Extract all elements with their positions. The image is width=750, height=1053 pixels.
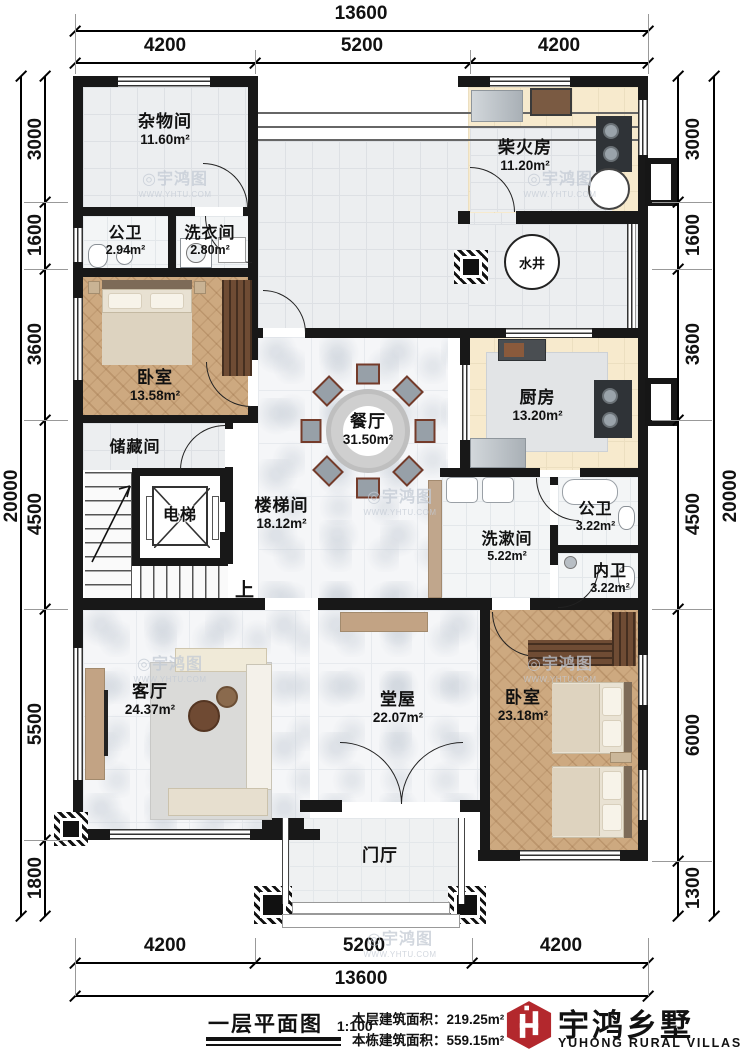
title-underline-thick: [206, 1037, 341, 1041]
ext-line: [24, 202, 68, 203]
ext-line: [648, 938, 649, 996]
courtyard-sill-line: [258, 112, 638, 114]
dim-top-seg1: 4200: [144, 35, 186, 57]
wall-hall-south-left: [300, 800, 342, 812]
water-well: 水井: [504, 234, 560, 290]
ext-line: [470, 50, 471, 74]
dim-top-seg3: 4200: [538, 35, 580, 57]
sofa: [246, 664, 272, 790]
bed-headboard: [102, 280, 192, 289]
ext-line: [75, 938, 76, 996]
wall-kitchen-south-right: [580, 468, 648, 477]
column: [454, 250, 488, 284]
wall-firewood-south-stub: [458, 211, 470, 224]
building-area-line: 本栋建筑面积：559.15m²: [352, 1029, 504, 1049]
dim-line: [75, 995, 648, 997]
wall-firewood-south: [516, 211, 648, 224]
chaise: [168, 788, 268, 816]
stove-burner: [603, 146, 619, 162]
pillow: [602, 687, 622, 716]
dim-line: [75, 962, 648, 964]
dim-line: [713, 76, 715, 916]
window: [118, 76, 210, 87]
dining-chair: [356, 478, 380, 499]
dim-left-seg2: 1600: [25, 214, 47, 256]
dim-bottom-seg1: 4200: [144, 935, 186, 957]
kitchen-pass-divider: [462, 365, 470, 440]
room-label-bath3: 内卫3.22m²: [565, 562, 655, 596]
courtyard-sill-line: [258, 126, 638, 128]
wall-kitchen-north: [592, 328, 648, 338]
dim-bottom-total: 13600: [335, 968, 388, 990]
floor-area-line: 本层建筑面积：219.25m²: [352, 1008, 504, 1028]
wall-hall-south-right: [460, 800, 488, 812]
room-label-living: 客厅24.37m²: [95, 682, 205, 719]
ext-line: [75, 14, 76, 74]
wall-storage-east: [248, 76, 258, 216]
dim-right-seg1: 3000: [683, 118, 705, 160]
window: [506, 328, 592, 338]
pillow: [108, 293, 142, 309]
dim-right-total: 20000: [720, 470, 742, 523]
wall-storage-south-stub: [243, 207, 258, 216]
room-label-bath2: 公卫3.22m²: [548, 500, 643, 534]
ext-line: [24, 609, 68, 610]
room-label-hall: 堂屋22.07m²: [328, 690, 468, 727]
bed-headboard: [624, 682, 632, 754]
porch-step: [292, 902, 450, 914]
dim-bottom-seg3: 4200: [540, 935, 582, 957]
dim-right-seg3: 3600: [683, 323, 705, 365]
pillow: [602, 720, 622, 747]
room-label-firewood: 柴火房11.20m²: [455, 138, 595, 175]
bed-duvet: [552, 768, 600, 836]
firewood-stove-feeder: [530, 88, 572, 116]
dim-top-total: 13600: [335, 3, 388, 25]
vanity-sink: [482, 477, 514, 503]
wall-storage-south: [73, 207, 195, 216]
wall-mid-south-right: [530, 598, 648, 610]
stairs-up-label: 上: [230, 580, 260, 603]
room-label-elevator: 电梯: [140, 506, 220, 525]
ext-line: [472, 938, 473, 962]
wall-stair-block-east-stub: [225, 423, 233, 429]
dim-left-seg6: 1800: [25, 857, 47, 899]
ext-line: [648, 14, 649, 74]
flue-box: [645, 158, 677, 206]
ext-line: [24, 269, 68, 270]
dim-left-seg1: 3000: [25, 118, 47, 160]
porch-step: [282, 914, 460, 928]
wall-kitchen-south-left: [440, 468, 540, 477]
dining-chair: [356, 364, 380, 385]
ext-line: [652, 269, 712, 270]
ext-line: [652, 861, 712, 862]
brand-name-en: YUHONG RURAL VILLAS: [558, 1036, 742, 1050]
stairs-lower-flight: [140, 566, 228, 598]
wardrobe-side: [612, 612, 636, 666]
dim-bottom-seg2: 5200: [343, 935, 385, 957]
window: [73, 648, 83, 780]
nightstand: [194, 281, 206, 294]
dim-left-seg4: 4500: [25, 493, 47, 535]
pillow: [150, 293, 184, 309]
washroom-wood-screen: [428, 480, 442, 598]
nightstand: [88, 281, 100, 294]
flue-box: [645, 378, 677, 426]
plan-title: 一层平面图 1:100: [208, 1008, 373, 1038]
room-label-store2: 储藏间: [80, 438, 190, 457]
ext-line: [24, 840, 68, 841]
bed-duvet: [102, 312, 192, 365]
dim-line: [75, 30, 648, 32]
dim-right-seg5: 6000: [683, 714, 705, 756]
ext-line: [255, 938, 256, 962]
window: [638, 655, 648, 705]
room-label-kitchen: 厨房13.20m²: [470, 388, 605, 425]
wardrobe: [222, 280, 252, 376]
wall-bath1-south: [73, 268, 258, 277]
room-label-stairwell: 楼梯间18.12m²: [224, 496, 339, 533]
wall-bath2-bath3-divider: [558, 545, 648, 553]
room-label-washroom: 洗漱间5.22m²: [452, 530, 562, 564]
water-well-label: 水井: [519, 253, 545, 272]
porch-side-wall: [458, 818, 465, 904]
window: [638, 100, 648, 155]
pillow: [602, 804, 622, 831]
dim-left-seg5: 5500: [25, 703, 47, 745]
porch-side-wall: [282, 818, 289, 904]
room-label-dining: 餐厅31.50m²: [308, 412, 428, 449]
firewood-sink: [471, 90, 523, 122]
window: [520, 850, 620, 861]
ext-line: [24, 420, 68, 421]
window: [110, 829, 250, 840]
ext-line: [652, 202, 712, 203]
wall-dining-north: [305, 328, 506, 338]
room-label-storage: 杂物间11.60m²: [95, 112, 235, 149]
title-underline-thin: [206, 1044, 341, 1046]
pillow: [602, 771, 622, 800]
dim-right-seg6: 1300: [683, 867, 705, 909]
fridge-detail: [504, 343, 524, 357]
room-label-porch: 门厅: [320, 846, 440, 866]
ext-line: [652, 609, 712, 610]
stove-burner: [603, 123, 619, 139]
window: [73, 298, 83, 380]
ext-line: [255, 50, 256, 74]
dim-line: [75, 62, 648, 64]
dim-line: [20, 76, 22, 916]
room-label-bedroom1: 卧室13.58m²: [90, 368, 220, 405]
wall-bedroom1-south: [73, 415, 258, 423]
kitchen-sink: [470, 438, 526, 468]
wall-mid-south-center: [318, 598, 492, 610]
brand-logo-icon: [506, 1000, 552, 1053]
window-courtyard: [627, 224, 636, 328]
floor-plan-canvas: 水井 杂物间11.60m² 公卫2.94m² 洗衣间2.80m² 柴火房11.2…: [0, 0, 750, 1053]
wall-kitchen-west-top: [460, 337, 470, 365]
coffee-table: [216, 686, 238, 708]
vanity-sink: [446, 477, 478, 503]
hall-console: [340, 612, 428, 632]
dim-right-seg2: 1600: [683, 214, 705, 256]
stairs-direction-arrow: [84, 470, 144, 570]
nightstand: [610, 752, 632, 763]
room-label-laundry: 洗衣间2.80m²: [170, 224, 250, 258]
wall-elevator-bottom: [132, 558, 228, 566]
window: [638, 770, 648, 820]
room-label-bath1: 公卫2.94m²: [83, 224, 168, 258]
dim-top-seg2: 5200: [341, 35, 383, 57]
dim-right-seg4: 4500: [683, 493, 705, 535]
window: [73, 228, 83, 262]
window: [490, 76, 570, 87]
room-label-bedroom2: 卧室23.18m²: [468, 688, 578, 725]
bed-headboard: [624, 766, 632, 838]
dim-left-seg3: 3600: [25, 323, 47, 365]
ext-line: [652, 420, 712, 421]
